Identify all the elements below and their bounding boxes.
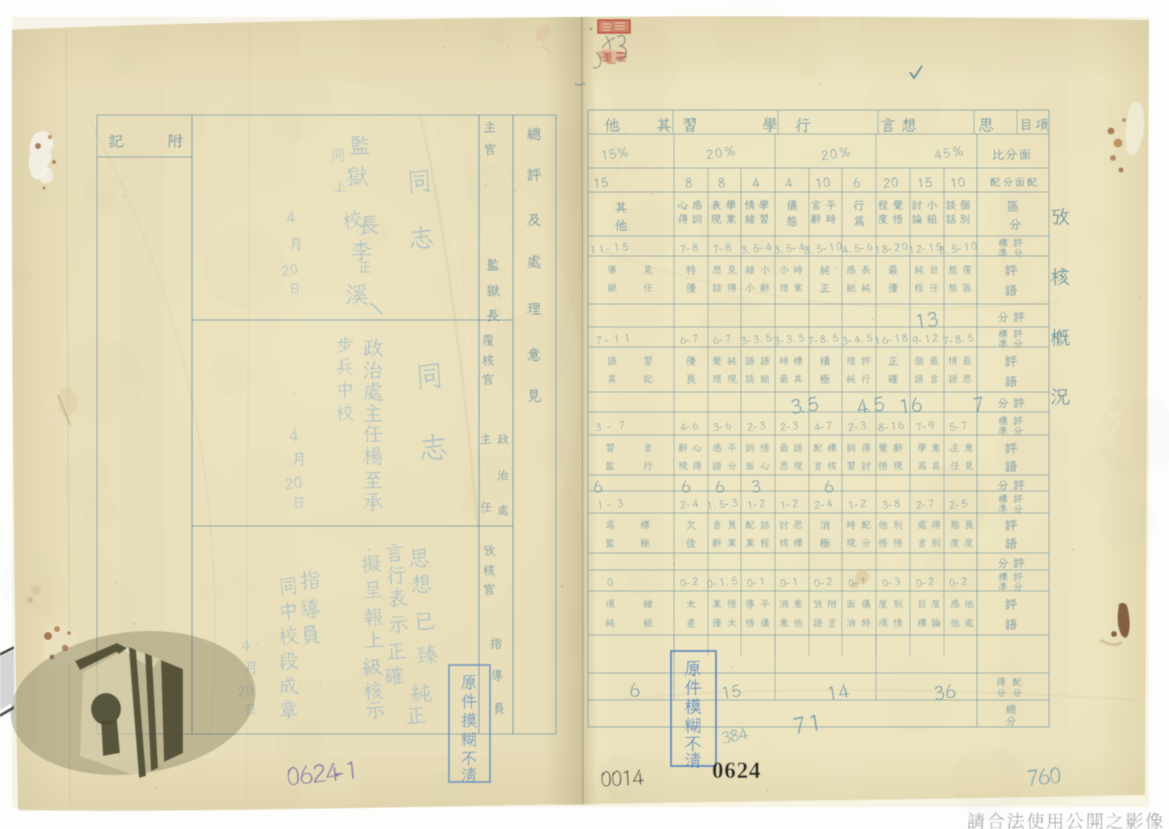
svg-text:0624: 0624 <box>712 758 761 783</box>
